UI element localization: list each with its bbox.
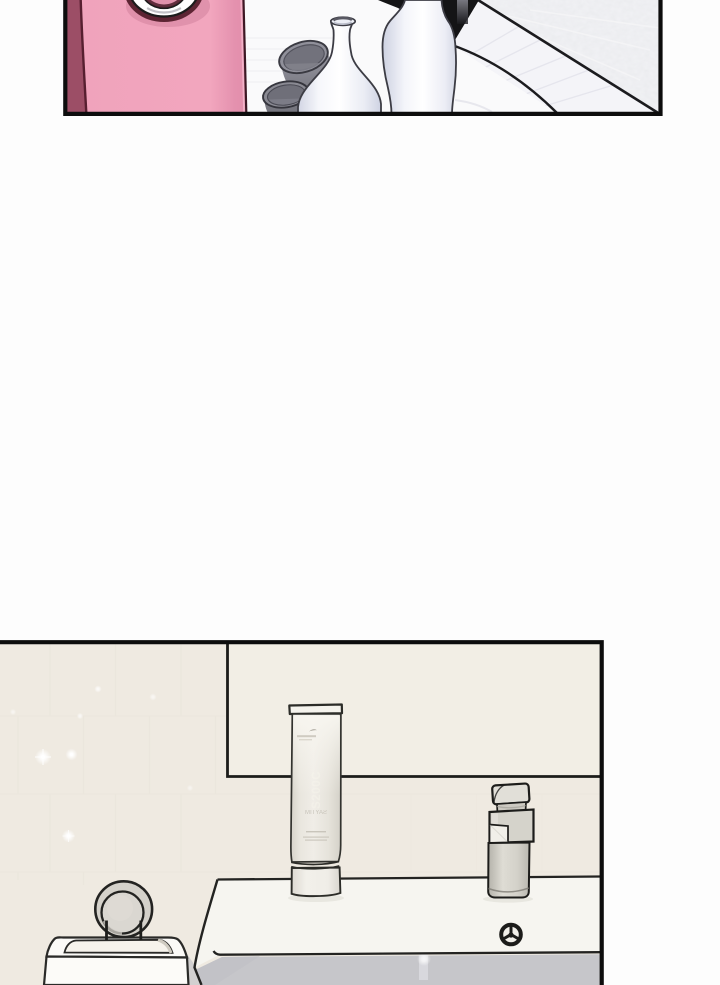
- svg-text:S200C: S200C: [311, 771, 323, 809]
- svg-text:SAYTIM: SAYTIM: [305, 810, 327, 816]
